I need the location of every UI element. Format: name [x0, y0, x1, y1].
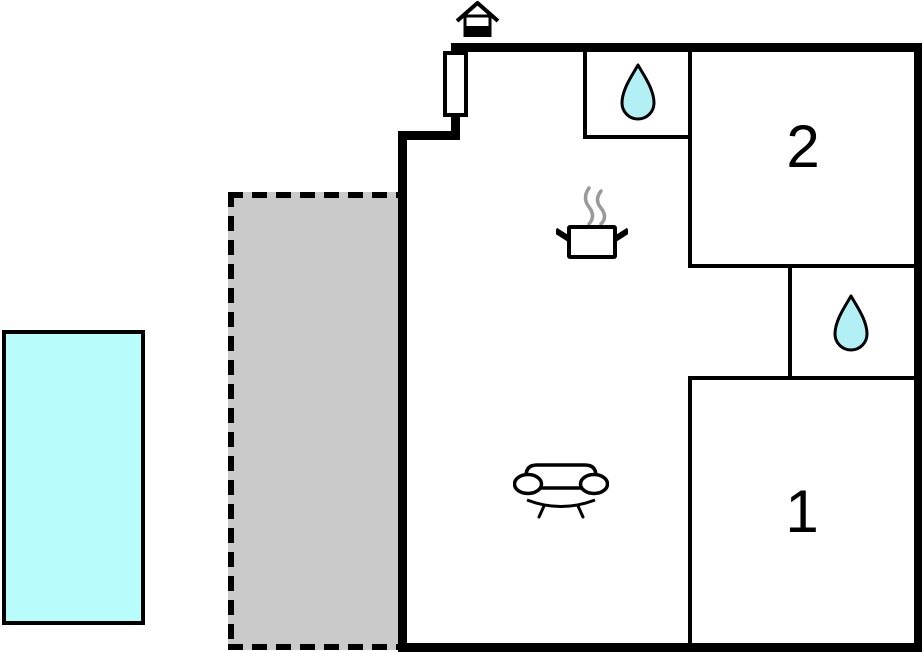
sofa-icon — [513, 462, 609, 519]
terrace-dashed-border — [228, 192, 403, 650]
entrance-door — [443, 51, 468, 117]
entrance-icon — [455, 1, 500, 37]
wall-bathroom-middle-left — [788, 264, 792, 380]
wall-bathroom-top-bottom — [583, 135, 692, 139]
water-drop-icon — [619, 63, 657, 121]
wall-room1-left — [688, 376, 692, 643]
wall-room1-top — [688, 376, 914, 380]
wall-bottom — [398, 643, 922, 652]
wall-bathroom-top-left — [583, 51, 587, 139]
wall-top — [451, 43, 922, 52]
wall-left — [398, 131, 407, 652]
wall-room2-left — [688, 51, 692, 268]
wall-room2-bottom — [688, 264, 914, 268]
floor-plan: 2 1 — [0, 0, 923, 652]
room-label-2: 2 — [786, 117, 819, 177]
cooking-pot-icon — [556, 186, 628, 260]
wall-right — [914, 43, 922, 651]
water-drop-icon — [832, 294, 870, 352]
swimming-pool — [2, 330, 145, 625]
terrace-area — [228, 192, 403, 650]
room-label-1: 1 — [785, 482, 818, 542]
